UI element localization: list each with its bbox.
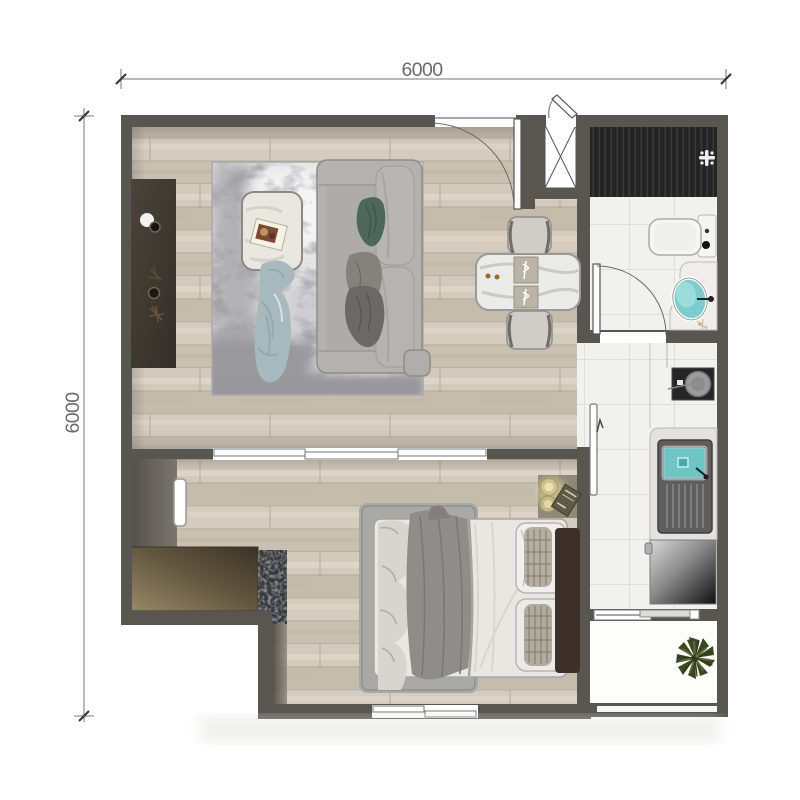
svg-text:6000: 6000 [62, 392, 84, 434]
svg-text:6000: 6000 [402, 59, 444, 81]
